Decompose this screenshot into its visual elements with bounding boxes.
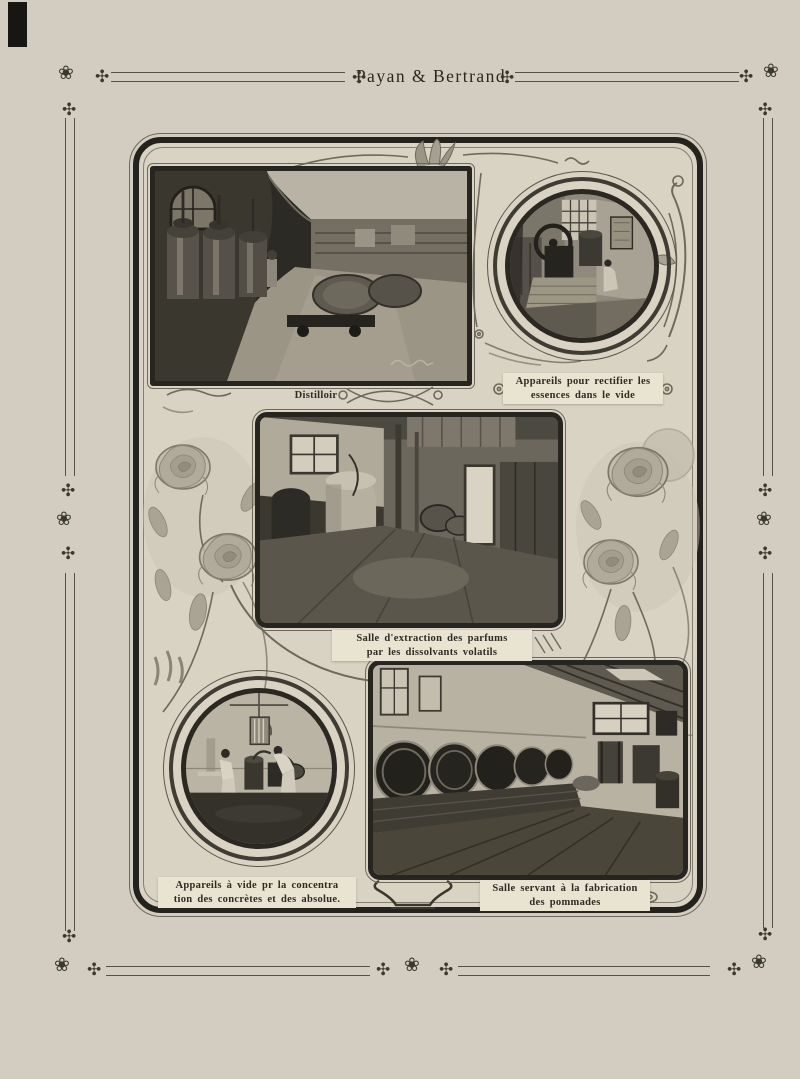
border-star-ornament: ✣ <box>758 927 772 944</box>
caption-line: Distilloir <box>295 390 338 401</box>
border-star-ornament: ✣ <box>758 102 772 119</box>
photo-pommades-image <box>373 665 683 875</box>
border-rose-ornament: ❀ <box>404 956 420 975</box>
caption-line: Appareils pour rectifier les <box>507 375 659 389</box>
caption-line: tion des concrètes et des absolue. <box>162 893 352 907</box>
border-rose-ornament: ❀ <box>54 956 70 975</box>
photo-pommades <box>368 660 688 880</box>
border-star-ornament: ✣ <box>61 546 75 563</box>
border-rule-bottom-left <box>106 966 370 976</box>
caption-rectifier: Appareils pour rectifier les essences da… <box>503 373 663 404</box>
caption-line: par les dissolvants volatils <box>336 646 528 660</box>
border-rule-bottom-right <box>458 966 710 976</box>
border-star-ornament: ✣ <box>62 929 76 946</box>
photo-rectifier-rim <box>505 189 659 343</box>
border-rose-ornament: ❀ <box>751 953 767 972</box>
border-rule-top-right <box>515 72 739 82</box>
photo-concentration-ring <box>169 676 349 861</box>
caption-pommades-strip: Salle servant à la fabrication des pomma… <box>480 880 650 911</box>
border-star-ornament: ✣ <box>727 962 741 979</box>
page-title: Payan & Bertrand <box>352 66 510 87</box>
border-star-ornament: ✣ <box>62 102 76 119</box>
border-star-ornament: ✣ <box>376 962 390 979</box>
border-star-ornament: ✣ <box>500 70 514 87</box>
border-star-ornament: ✣ <box>87 962 101 979</box>
caption-line: Appareils à vide pr la concentra <box>162 879 352 893</box>
border-rose-ornament: ❀ <box>763 62 779 81</box>
border-star-ornament: ✣ <box>439 962 453 979</box>
border-star-ornament: ✣ <box>95 69 109 86</box>
border-rule-left-upper <box>65 118 75 476</box>
photo-rectifier-ring <box>493 177 671 355</box>
border-star-ornament: ✣ <box>61 483 75 500</box>
caption-extraction: Salle d'extraction des parfums par les d… <box>332 630 532 661</box>
caption-line: Salle d'extraction des parfums <box>336 632 528 646</box>
border-rule-right-lower <box>763 573 773 928</box>
border-rule-left-lower <box>65 573 75 931</box>
photo-distilloir <box>150 166 472 386</box>
photo-extraction <box>255 412 563 628</box>
border-rule-right-upper <box>763 118 773 476</box>
border-star-ornament: ✣ <box>352 70 366 87</box>
caption-line: des pommades <box>484 896 646 910</box>
photo-concentration-image <box>186 693 332 844</box>
album-page: { "page": { "title": "Payan & Bertrand" … <box>0 0 800 1079</box>
border-star-ornament: ✣ <box>758 483 772 500</box>
caption-concentration: Appareils à vide pr la concentra tion de… <box>158 877 356 908</box>
photo-concentration-rim <box>181 688 337 849</box>
photo-extraction-image <box>260 417 558 623</box>
border-star-ornament: ✣ <box>739 69 753 86</box>
border-star-ornament: ✣ <box>758 546 772 563</box>
border-rose-ornament: ❀ <box>58 64 74 83</box>
scan-artifact-mark <box>8 2 27 47</box>
photo-concentration <box>163 670 355 867</box>
photo-distilloir-image <box>155 171 467 381</box>
caption-pommades: Salle servant à la fabrication des pomma… <box>465 880 665 911</box>
caption-line: Salle servant à la fabrication <box>484 882 646 896</box>
border-rose-ornament: ❀ <box>756 510 772 529</box>
border-rule-top-left <box>111 72 345 82</box>
caption-distilloir: Distilloir <box>246 389 386 403</box>
border-rose-ornament: ❀ <box>56 510 72 529</box>
caption-line: essences dans le vide <box>507 389 659 403</box>
photo-rectifier-image <box>510 194 654 338</box>
photo-rectifier <box>487 171 677 361</box>
